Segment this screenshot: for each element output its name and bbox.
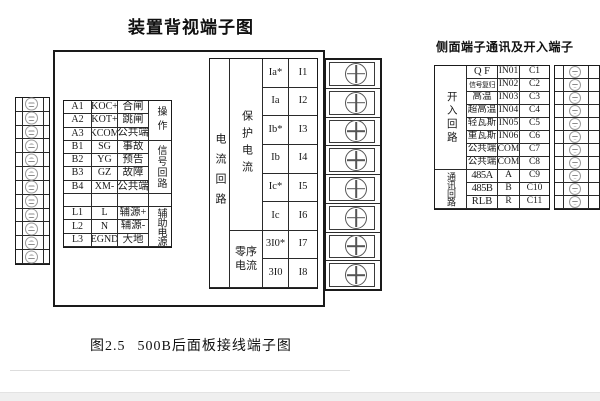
screw-slot-icon (569, 79, 581, 91)
terminal-cell (16, 222, 49, 236)
table-cell: 合闸 (118, 101, 149, 114)
group-label-text: 辅助电源 (155, 208, 165, 246)
table-cell: KOT+ (92, 114, 118, 127)
terminal-cell (555, 144, 599, 157)
screw-cross-icon (345, 120, 367, 142)
current-table: 电流回路保护电流零序电流Ia*I1IaI2Ib*I3IbI4Ic*I5IcI63… (209, 58, 318, 289)
group-label-text: 保护电流 (241, 110, 252, 178)
terminal-cell (16, 250, 49, 264)
table-cell: I5 (289, 174, 317, 203)
table-cell: C3 (520, 92, 549, 105)
group-label: 零序电流 (230, 231, 263, 288)
terminal-cell (16, 236, 49, 250)
group-label: 辅助电源 (149, 207, 171, 247)
terminal-cell (555, 105, 599, 118)
table-cell: I2 (289, 88, 317, 117)
screw-slot-icon (25, 181, 38, 194)
table-cell: Ib* (263, 116, 289, 145)
group-label-text: 开入回路 (445, 91, 456, 145)
terminal-cell (326, 233, 380, 262)
table-cell (118, 194, 149, 207)
figure-number: 图2.5 (90, 339, 126, 354)
terminal-cell (326, 60, 380, 89)
table-cell (64, 194, 92, 207)
table-cell: IN01 (498, 66, 520, 79)
table-cell: I1 (289, 59, 317, 88)
group-label (149, 194, 171, 207)
terminal-cell (16, 126, 49, 140)
table-cell: 公共端 (467, 144, 498, 157)
group-label: 通讯回路 (435, 170, 467, 209)
screw-cross-icon (345, 235, 367, 257)
operation-signal-table: A1KOC+合闸A2KOT+跳闸A3KCOM公共端B1SG事故B2YG预告B3G… (63, 100, 172, 248)
table-cell: A2 (64, 114, 92, 127)
screw-cross-icon (345, 178, 367, 200)
table-cell: L (92, 207, 118, 220)
table-cell: 信号复归 (467, 79, 498, 92)
table-cell: SG (92, 141, 118, 154)
table-cell: Ic (263, 202, 289, 231)
table-cell: 辅源- (118, 220, 149, 233)
terminal-cell (326, 175, 380, 204)
table-cell: 重瓦斯 (467, 131, 498, 144)
table-cell: Ia (263, 88, 289, 117)
screw-cross-icon (345, 63, 367, 85)
table-cell: C11 (520, 196, 549, 209)
screw-slot-icon (569, 183, 581, 195)
table-cell: I4 (289, 145, 317, 174)
screw-slot-icon (25, 250, 38, 263)
table-cell: 485A (467, 170, 498, 183)
terminal-cell (555, 157, 599, 170)
table-cell: KOC+ (92, 101, 118, 114)
screw-slot-icon (569, 170, 581, 182)
table-cell: IN04 (498, 105, 520, 118)
table-cell: I6 (289, 202, 317, 231)
faint-rule (10, 370, 350, 371)
table-cell: C9 (520, 170, 549, 183)
screw-cross-icon (345, 207, 367, 229)
side-title: 侧面端子通讯及开入端子 (436, 38, 588, 55)
table-cell: Ia* (263, 59, 289, 88)
screw-slot-icon (25, 126, 38, 139)
main-title: 装置背视端子图 (124, 13, 258, 38)
screw-slot-icon (569, 92, 581, 104)
table-cell: L2 (64, 220, 92, 233)
table-cell: Q F (467, 66, 498, 79)
terminal-cell (555, 183, 599, 196)
wiring-diagram-page: { "page": { "main_title": "装置背视端子图", "si… (0, 0, 600, 400)
table-cell: 跳闸 (118, 114, 149, 127)
group-label: 操作 (149, 101, 171, 141)
strip-divider (43, 98, 44, 264)
table-cell: C1 (520, 66, 549, 79)
screw-slot-icon (25, 209, 38, 222)
table-cell: B4 (64, 181, 92, 194)
table-cell: 轻瓦斯 (467, 118, 498, 131)
screw-slot-icon (25, 167, 38, 180)
table-cell: 公共端 (467, 157, 498, 170)
terminal-cell (555, 66, 599, 79)
table-cell: YG (92, 154, 118, 167)
screw-cross-icon (345, 264, 367, 286)
table-cell: IN03 (498, 92, 520, 105)
table-cell: C4 (520, 105, 549, 118)
figure-caption: 图2.5500B后面板接线端子图 (90, 335, 292, 355)
screw-slot-icon (25, 236, 38, 249)
table-cell: R (498, 196, 520, 209)
group-label: 保护电流 (230, 59, 263, 231)
circuit-label: 电流回路 (214, 133, 225, 213)
strip-divider (588, 66, 589, 209)
table-cell: C2 (520, 79, 549, 92)
table-cell: I8 (289, 259, 317, 288)
screw-slot-icon (25, 112, 38, 125)
table-cell: IN06 (498, 131, 520, 144)
table-cell: 高温 (467, 92, 498, 105)
strip-divider (22, 98, 23, 264)
terminal-cell (16, 195, 49, 209)
table-cell: L1 (64, 207, 92, 220)
table-cell: 公共端 (118, 181, 149, 194)
table-cell: L3 (64, 234, 92, 247)
screw-cross-icon (345, 92, 367, 114)
terminal-cell (16, 98, 49, 112)
table-cell: 预告 (118, 154, 149, 167)
group-label-text: 操作 (155, 106, 165, 134)
screw-slot-icon (569, 144, 581, 156)
terminal-cell (326, 261, 380, 289)
table-cell: A1 (64, 101, 92, 114)
side-terminal-table: 开入回路通讯回路Q FIN01C1信号复归IN02C2高温IN03C3超高温IN… (434, 65, 550, 210)
screw-slot-icon (569, 157, 581, 169)
table-cell: COM (498, 144, 520, 157)
table-cell: C6 (520, 131, 549, 144)
terminal-cell (326, 204, 380, 233)
table-cell: Ib (263, 145, 289, 174)
screw-slot-icon (569, 131, 581, 143)
figure-caption-text: 500B后面板接线端子图 (138, 339, 292, 354)
left-terminal-strip (15, 97, 50, 265)
table-cell: A (498, 170, 520, 183)
table-cell: Ic* (263, 174, 289, 203)
table-cell (92, 194, 118, 207)
table-cell: 3I0* (263, 231, 289, 260)
table-cell: B1 (64, 141, 92, 154)
screw-slot-icon (25, 222, 38, 235)
terminal-cell (555, 92, 599, 105)
table-cell: IN02 (498, 79, 520, 92)
screw-slot-icon (25, 153, 38, 166)
group-label: 开入回路 (435, 66, 467, 170)
table-cell: 3I0 (263, 259, 289, 288)
terminal-cell (326, 89, 380, 118)
right-terminal-strip (554, 65, 600, 210)
terminal-cell (16, 209, 49, 223)
screw-slot-icon (25, 98, 38, 111)
table-cell: 故障 (118, 167, 149, 180)
table-cell: C8 (520, 157, 549, 170)
table-cell: 事故 (118, 141, 149, 154)
terminal-cell (555, 170, 599, 183)
table-cell: XM- (92, 181, 118, 194)
group-label-text: 零序电流 (234, 245, 258, 274)
screw-slot-icon (569, 118, 581, 130)
table-cell: GZ (92, 167, 118, 180)
table-cell: RLB (467, 196, 498, 209)
screw-slot-icon (25, 139, 38, 152)
terminal-cell (16, 167, 49, 181)
table-cell: 辅源+ (118, 207, 149, 220)
table-cell: B (498, 183, 520, 196)
table-cell: B3 (64, 167, 92, 180)
screw-slot-icon (569, 66, 581, 78)
terminal-cell (555, 196, 599, 209)
terminal-cell (16, 153, 49, 167)
terminal-cell (16, 112, 49, 126)
table-cell: C7 (520, 144, 549, 157)
screw-cross-icon (345, 149, 367, 171)
terminal-cell (326, 118, 380, 147)
strip-divider (563, 66, 564, 209)
table-cell: EGND (92, 234, 118, 247)
table-cell: COM (498, 157, 520, 170)
table-cell: KCOM (92, 128, 118, 141)
terminal-cell (326, 146, 380, 175)
group-label-text: 信号回路 (155, 145, 165, 189)
circuit-label-cell: 电流回路 (210, 59, 230, 288)
screw-slot-icon (569, 105, 581, 117)
table-cell: B2 (64, 154, 92, 167)
table-cell: 大地 (118, 234, 149, 247)
middle-terminal-strip (324, 58, 382, 291)
table-cell: I3 (289, 116, 317, 145)
terminal-cell (555, 118, 599, 131)
screw-slot-icon (569, 196, 581, 208)
terminal-cell (555, 79, 599, 92)
table-cell: C5 (520, 118, 549, 131)
table-cell: 超高温 (467, 105, 498, 118)
table-cell: N (92, 220, 118, 233)
screw-slot-icon (25, 195, 38, 208)
table-cell: A3 (64, 128, 92, 141)
table-cell: 485B (467, 183, 498, 196)
table-cell: IN05 (498, 118, 520, 131)
terminal-cell (16, 181, 49, 195)
table-cell: C10 (520, 183, 549, 196)
table-cell: 公共端 (118, 128, 149, 141)
group-label-text: 通讯回路 (446, 172, 455, 206)
terminal-cell (16, 139, 49, 153)
terminal-cell (555, 131, 599, 144)
table-cell: I7 (289, 231, 317, 260)
group-label: 信号回路 (149, 141, 171, 194)
